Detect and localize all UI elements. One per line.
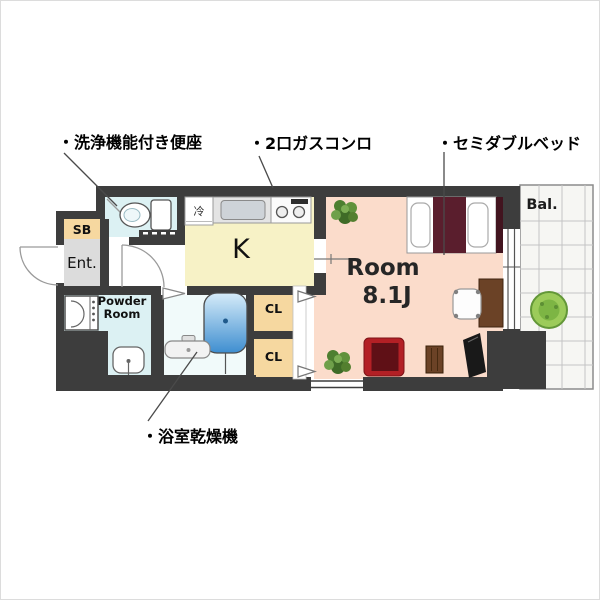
stove-leader-line: [259, 156, 273, 188]
closet-doors: [293, 286, 315, 379]
powder-room-label: Powder: [98, 294, 147, 308]
bath-dryer-annotation: ・浴室乾燥機: [142, 427, 238, 446]
bottom-window: [311, 379, 363, 391]
washbasin-icon: [113, 347, 144, 375]
bed-cover: [433, 197, 466, 253]
gas-stove-icon: [271, 197, 311, 223]
powder-room-label: Room: [104, 307, 141, 321]
balcony-window: [503, 229, 520, 329]
floor-plan-page: ・洗浄機能付き便座 ・2口ガスコンロ ・セミダブルベッド ・浴室乾燥機 SB E…: [0, 0, 600, 600]
washlet-leader-line: [64, 153, 117, 206]
main-room-label: Room: [346, 255, 419, 281]
closet-lower-label: CL: [265, 349, 282, 364]
bed-annotation: ・セミダブルベッド: [437, 134, 581, 153]
pillow: [411, 203, 430, 247]
bush-icon: [531, 292, 567, 328]
bed: [407, 197, 503, 253]
desk: [479, 279, 503, 327]
closet-upper-label: CL: [265, 301, 282, 316]
sofa: [364, 338, 404, 376]
main-room-size-label: 8.1J: [362, 283, 411, 309]
kitchen-counter: [213, 197, 271, 223]
chair: [453, 289, 481, 319]
entrance-label: Ent.: [67, 254, 97, 272]
pillow: [468, 203, 488, 247]
kitchen-label: K: [232, 234, 251, 265]
gas-stove-annotation: ・2口ガスコンロ: [249, 134, 372, 153]
shoe-box-label: SB: [73, 222, 92, 237]
washlet-annotation: ・洗浄機能付き便座: [58, 133, 202, 152]
headboard: [496, 197, 503, 253]
floor-plan-drawing: ・洗浄機能付き便座 ・2口ガスコンロ ・セミダブルベッド ・浴室乾燥機 SB E…: [1, 1, 600, 601]
closet-door-icon: [298, 366, 315, 377]
balcony-label: Bal.: [526, 197, 557, 213]
sink: [221, 201, 265, 220]
entrance-door: [20, 247, 58, 285]
refrigerator-label: 冷: [194, 205, 205, 218]
cabinet: [426, 346, 443, 373]
washing-machine-icon: [65, 296, 98, 330]
